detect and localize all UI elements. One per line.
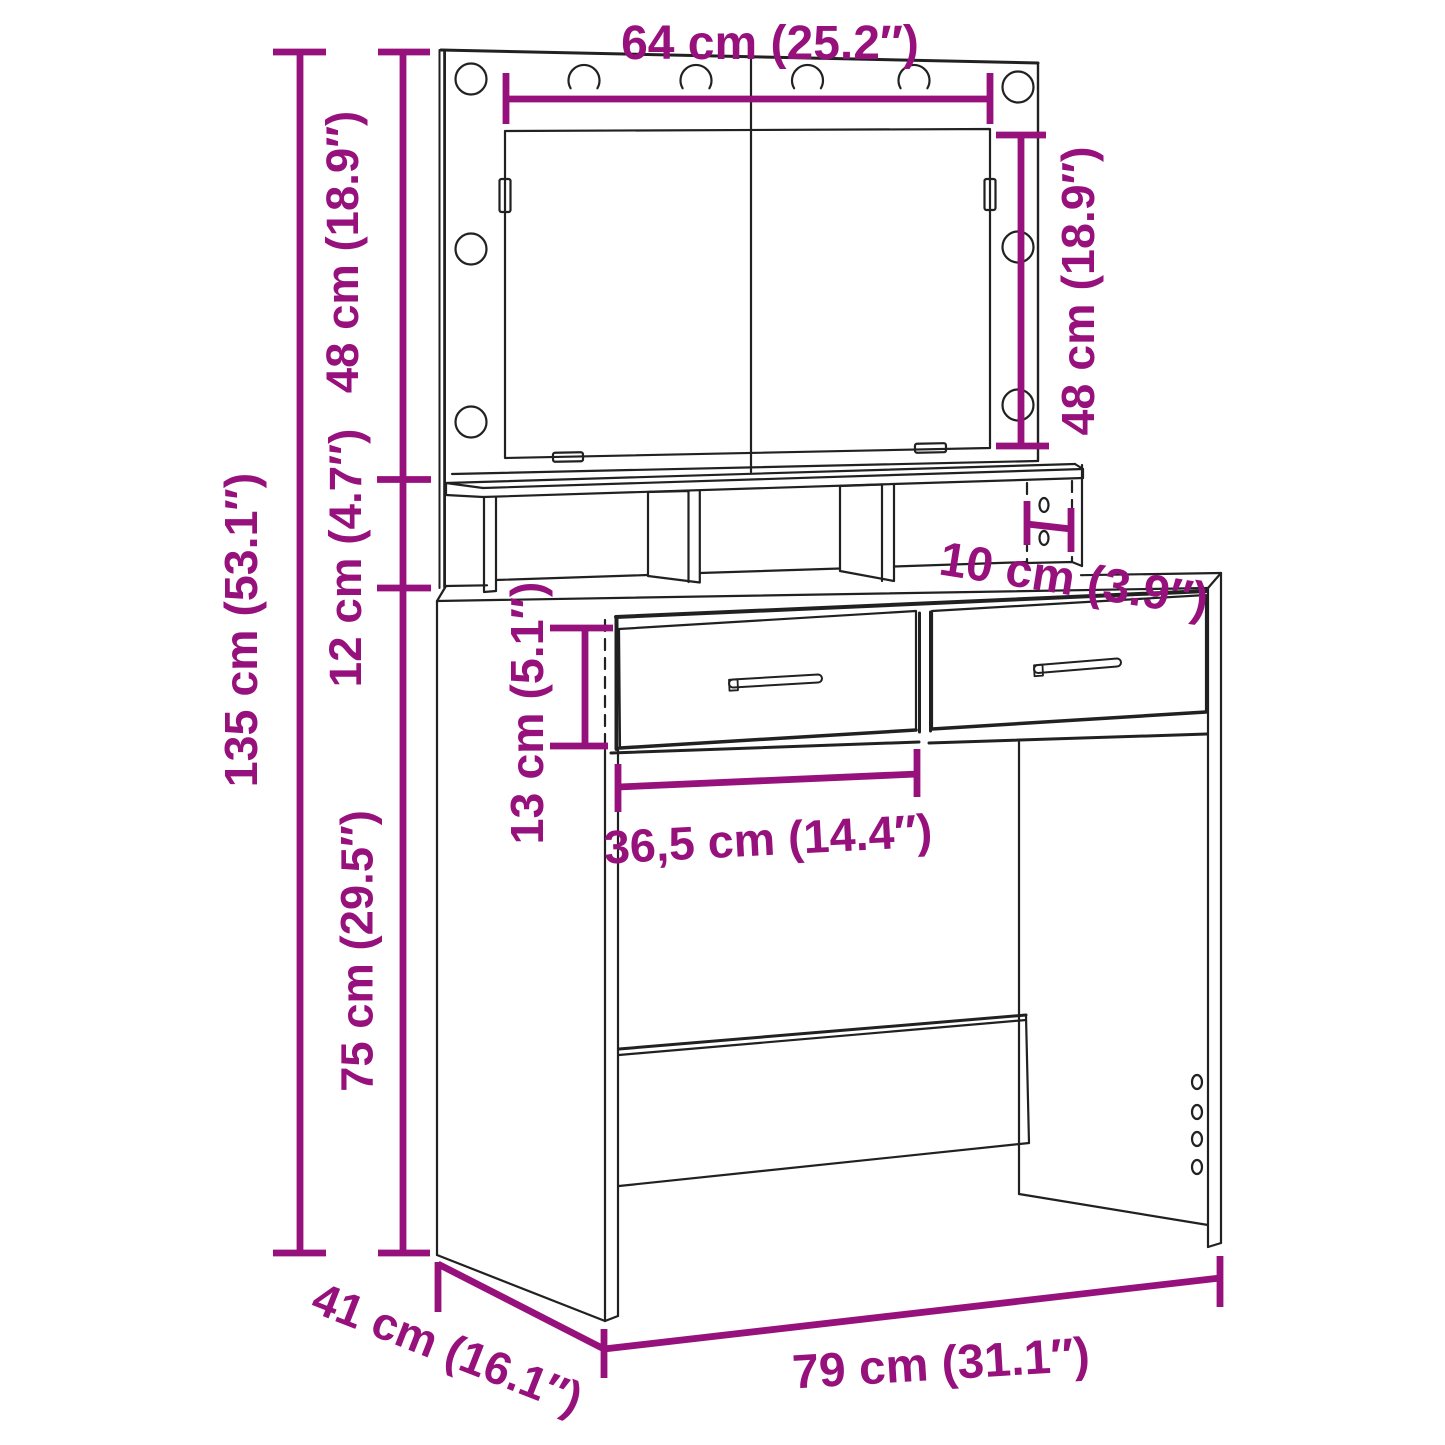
svg-text:48 cm (18.9″): 48 cm (18.9″) — [317, 111, 368, 393]
svg-text:48 cm (18.9″): 48 cm (18.9″) — [1052, 146, 1104, 435]
svg-text:75 cm (29.5″): 75 cm (29.5″) — [332, 810, 383, 1092]
svg-text:12 cm (4.7″): 12 cm (4.7″) — [320, 429, 371, 688]
svg-text:13 cm (5.1″): 13 cm (5.1″) — [501, 582, 553, 845]
svg-text:135 cm (53.1″): 135 cm (53.1″) — [215, 473, 267, 787]
svg-text:64 cm (25.2″): 64 cm (25.2″) — [621, 17, 919, 70]
